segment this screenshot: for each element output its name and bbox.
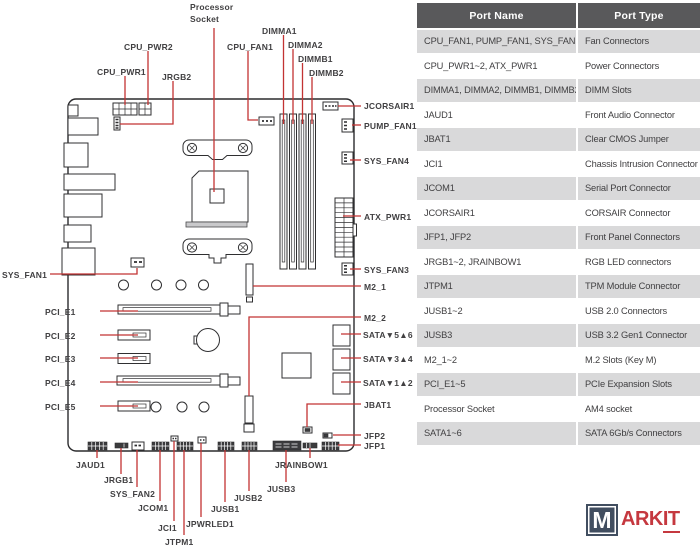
jbat1-connector bbox=[303, 427, 312, 433]
label-jci1: JCI1 bbox=[158, 522, 177, 534]
table-row: Processor SocketAM4 socket bbox=[417, 398, 700, 421]
table-header-row: Port Name Port Type bbox=[417, 3, 700, 28]
port-name-cell: JAUD1 bbox=[417, 104, 576, 127]
label-jbat1: JBAT1 bbox=[364, 399, 391, 411]
label-jusb3: JUSB3 bbox=[267, 483, 295, 495]
port-type-cell: AM4 socket bbox=[578, 398, 700, 421]
table-row: M2_1~2M.2 Slots (Key M) bbox=[417, 349, 700, 372]
label-sys-fan3: SYS_FAN3 bbox=[364, 264, 409, 276]
label-jfp1: JFP1 bbox=[364, 440, 385, 452]
label-sys-fan2: SYS_FAN2 bbox=[110, 488, 155, 500]
label-jrainbow1: JRAINBOW1 bbox=[275, 459, 328, 471]
table-row: JUSB3USB 3.2 Gen1 Connector bbox=[417, 324, 700, 347]
label-pci-e4: PCI_E4 bbox=[45, 377, 76, 389]
port-name-cell: JBAT1 bbox=[417, 128, 576, 151]
label-jcom1: JCOM1 bbox=[138, 502, 168, 514]
port-type-cell: Front Audio Connector bbox=[578, 104, 700, 127]
port-name-cell: JTPM1 bbox=[417, 275, 576, 298]
label-dimma2: DIMMA2 bbox=[288, 39, 323, 51]
label-jusb1: JUSB1 bbox=[211, 503, 239, 515]
sata-ports bbox=[333, 325, 350, 394]
jci1-connector bbox=[171, 436, 178, 441]
table-row: PCI_E1~5PCIe Expansion Slots bbox=[417, 373, 700, 396]
port-type-cell: Chassis Intrusion Connector bbox=[578, 153, 700, 176]
port-name-cell: CPU_PWR1~2, ATX_PWR1 bbox=[417, 55, 576, 78]
jcom1-connector bbox=[152, 442, 169, 450]
m2-2-slot bbox=[244, 396, 254, 432]
jrgb1-connector bbox=[115, 443, 128, 448]
atx-pwr1-connector bbox=[335, 198, 357, 257]
label-sys-fan4: SYS_FAN4 bbox=[364, 155, 409, 167]
table-row: JCI1Chassis Intrusion Connector bbox=[417, 153, 700, 176]
logo-m-letter: M bbox=[592, 507, 611, 534]
chipset bbox=[282, 353, 311, 378]
port-type-cell: USB 2.0 Connectors bbox=[578, 300, 700, 323]
label-jrgb2: JRGB2 bbox=[162, 71, 191, 83]
sys-fan4-connector bbox=[342, 152, 353, 164]
label-pump-fan1: PUMP_FAN1 bbox=[364, 120, 417, 132]
port-type-cell: M.2 Slots (Key M) bbox=[578, 349, 700, 372]
port-type-cell: SATA 6Gb/s Connectors bbox=[578, 422, 700, 445]
label-cpu-pwr1: CPU_PWR1 bbox=[97, 66, 146, 78]
port-type-cell: RGB LED connectors bbox=[578, 251, 700, 274]
motherboard-diagram bbox=[0, 0, 412, 547]
jusb2-connector bbox=[242, 442, 257, 450]
port-name-cell: SATA1~6 bbox=[417, 422, 576, 445]
table-row: CPU_FAN1, PUMP_FAN1, SYS_FAN1~4Fan Conne… bbox=[417, 30, 700, 53]
label-pci-e2: PCI_E2 bbox=[45, 330, 76, 342]
column-header-port-name: Port Name bbox=[417, 3, 576, 28]
label-dimmb2: DIMMB2 bbox=[309, 67, 344, 79]
label-sys-fan1: SYS_FAN1 bbox=[2, 269, 47, 281]
label-m2-2: M2_2 bbox=[364, 312, 386, 324]
markit-logo: M ARKIT bbox=[586, 504, 680, 536]
port-name-cell: JRGB1~2, JRAINBOW1 bbox=[417, 251, 576, 274]
label-dimmb1: DIMMB1 bbox=[298, 53, 333, 65]
port-name-cell: DIMMA1, DIMMA2, DIMMB1, DIMMB2 bbox=[417, 79, 576, 102]
port-name-cell: JCORSAIR1 bbox=[417, 202, 576, 225]
table-row: JBAT1Clear CMOS Jumper bbox=[417, 128, 700, 151]
label-jpwrled1: JPWRLED1 bbox=[186, 518, 234, 530]
port-type-cell: Clear CMOS Jumper bbox=[578, 128, 700, 151]
label-cpu-fan1: CPU_FAN1 bbox=[227, 41, 273, 53]
column-header-port-type: Port Type bbox=[578, 3, 700, 28]
cpu-fan1-connector bbox=[259, 117, 274, 125]
port-name-cell: JCI1 bbox=[417, 153, 576, 176]
table-row: DIMMA1, DIMMA2, DIMMB1, DIMMB2DIMM Slots bbox=[417, 79, 700, 102]
port-name-cell: CPU_FAN1, PUMP_FAN1, SYS_FAN1~4 bbox=[417, 30, 576, 53]
port-type-cell: DIMM Slots bbox=[578, 79, 700, 102]
manual-page: Processor Socket CPU_PWR2 CPU_PWR1 JRGB2… bbox=[0, 0, 700, 547]
jaud1-connector bbox=[88, 442, 107, 450]
label-jaud1: JAUD1 bbox=[76, 459, 105, 471]
label-pci-e5: PCI_E5 bbox=[45, 401, 76, 413]
port-name-cell: JUSB1~2 bbox=[417, 300, 576, 323]
port-type-cell: Serial Port Connector bbox=[578, 177, 700, 200]
label-sata-5-6: SATA▼5▲6 bbox=[363, 329, 413, 341]
port-type-cell: Front Panel Connectors bbox=[578, 226, 700, 249]
jrgb2-connector bbox=[114, 117, 120, 130]
logo-it: IT bbox=[663, 508, 680, 533]
logo-text: ARKIT bbox=[621, 508, 680, 533]
jfp2-connector bbox=[323, 433, 332, 438]
label-m2-1: M2_1 bbox=[364, 281, 386, 293]
jpwrled1-connector bbox=[198, 437, 206, 443]
port-name-cell: JUSB3 bbox=[417, 324, 576, 347]
jfp1-connector bbox=[322, 442, 339, 450]
sys-fan1-connector bbox=[131, 258, 144, 267]
port-type-cell: USB 3.2 Gen1 Connector bbox=[578, 324, 700, 347]
label-sata-1-2: SATA▼1▲2 bbox=[363, 377, 413, 389]
table-row: JCORSAIR1CORSAIR Connector bbox=[417, 202, 700, 225]
label-dimma1: DIMMA1 bbox=[262, 25, 297, 37]
port-type-cell: CORSAIR Connector bbox=[578, 202, 700, 225]
pump-fan1-connector bbox=[342, 119, 353, 132]
table-row: JAUD1Front Audio Connector bbox=[417, 104, 700, 127]
port-type-cell: PCIe Expansion Slots bbox=[578, 373, 700, 396]
jtpm1-connector bbox=[177, 442, 193, 450]
port-type-cell: TPM Module Connector bbox=[578, 275, 700, 298]
label-pci-e3: PCI_E3 bbox=[45, 353, 76, 365]
table-row: JUSB1~2USB 2.0 Connectors bbox=[417, 300, 700, 323]
label-jtpm1: JTPM1 bbox=[165, 536, 193, 547]
table-row: JFP1, JFP2Front Panel Connectors bbox=[417, 226, 700, 249]
label-jusb2: JUSB2 bbox=[234, 492, 262, 504]
jusb3-connector bbox=[273, 441, 301, 450]
jusb1-connector bbox=[218, 442, 234, 450]
port-name-cell: Processor Socket bbox=[417, 398, 576, 421]
label-cpu-pwr2: CPU_PWR2 bbox=[124, 41, 173, 53]
port-name-cell: M2_1~2 bbox=[417, 349, 576, 372]
port-table: Port Name Port Type CPU_FAN1, PUMP_FAN1,… bbox=[417, 3, 700, 447]
table-row: JRGB1~2, JRAINBOW1RGB LED connectors bbox=[417, 251, 700, 274]
label-pci-e1: PCI_E1 bbox=[45, 306, 76, 318]
logo-m-box: M bbox=[586, 504, 618, 536]
label-jcorsair1: JCORSAIR1 bbox=[364, 100, 414, 112]
cpu-power-connectors bbox=[113, 103, 151, 115]
table-row: SATA1~6SATA 6Gb/s Connectors bbox=[417, 422, 700, 445]
port-name-cell: PCI_E1~5 bbox=[417, 373, 576, 396]
sys-fan2-connector bbox=[132, 442, 144, 450]
jcorsair1-connector bbox=[323, 102, 338, 110]
table-row: CPU_PWR1~2, ATX_PWR1Power Connectors bbox=[417, 55, 700, 78]
port-name-cell: JFP1, JFP2 bbox=[417, 226, 576, 249]
table-row: JTPM1TPM Module Connector bbox=[417, 275, 700, 298]
logo-ark: ARK bbox=[621, 508, 663, 531]
port-type-cell: Fan Connectors bbox=[578, 30, 700, 53]
label-sata-3-4: SATA▼3▲4 bbox=[363, 353, 413, 365]
port-type-cell: Power Connectors bbox=[578, 55, 700, 78]
port-name-cell: JCOM1 bbox=[417, 177, 576, 200]
label-processor-socket: Processor Socket bbox=[190, 1, 242, 25]
label-jrgb1: JRGB1 bbox=[104, 474, 133, 486]
label-atx-pwr1: ATX_PWR1 bbox=[364, 211, 411, 223]
jrainbow1-connector bbox=[303, 443, 317, 448]
table-row: JCOM1Serial Port Connector bbox=[417, 177, 700, 200]
